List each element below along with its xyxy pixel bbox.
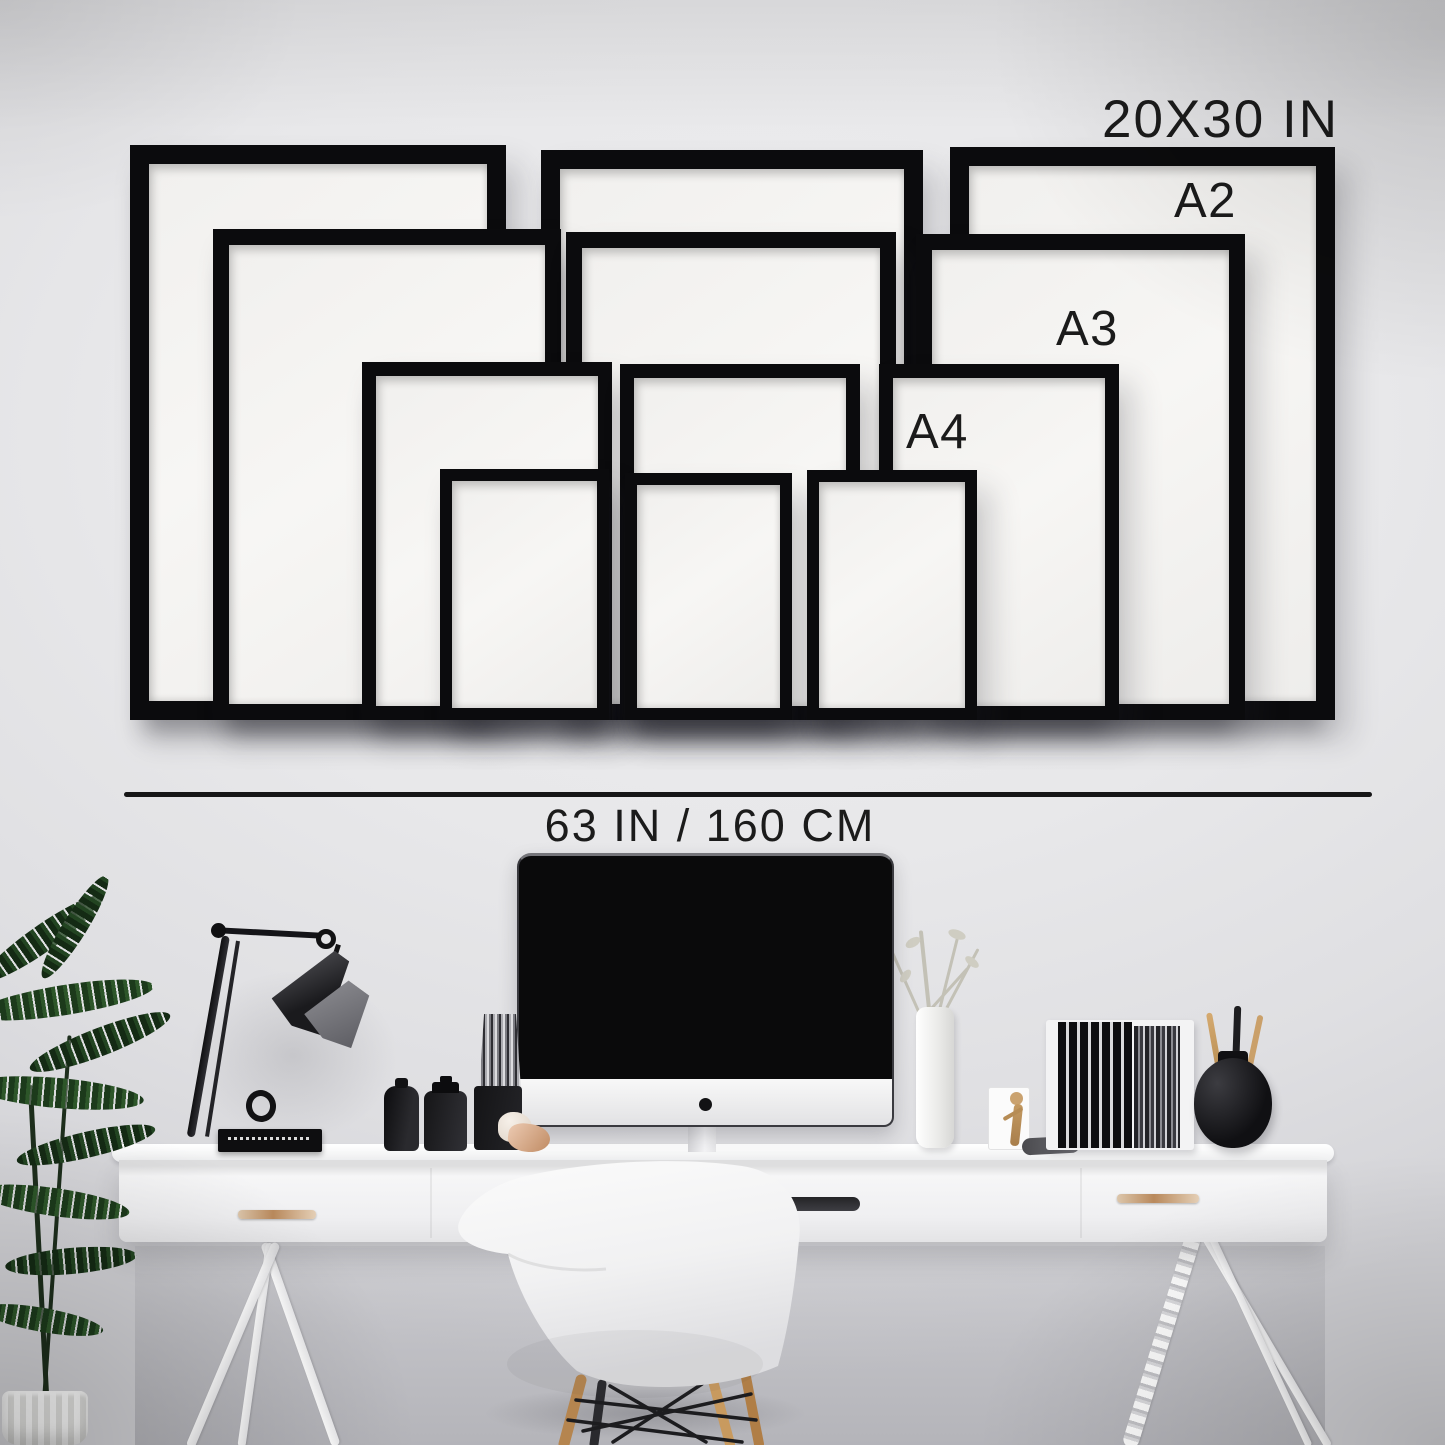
black-bottle	[384, 1086, 419, 1151]
size-label-a3: A3	[1056, 305, 1119, 354]
organizer-records	[1134, 1026, 1180, 1148]
measurement-line	[124, 792, 1372, 797]
lamp-hinge	[316, 929, 336, 949]
size-label-20x30: 20X30 IN	[1102, 93, 1339, 146]
jar-lid-handle	[440, 1076, 452, 1083]
desk-seam	[1080, 1168, 1082, 1238]
frame-a4-middle	[625, 473, 792, 720]
drawer-handle-left	[238, 1210, 316, 1219]
computer-monitor	[517, 853, 894, 1127]
glitter-ornament	[479, 1014, 521, 1090]
measurement-label: 63 IN / 160 CM	[450, 803, 970, 848]
desk-seam	[430, 1168, 432, 1238]
monitor-chin	[519, 1079, 892, 1125]
lamp-base-book	[218, 1129, 322, 1152]
frame-a4-right	[807, 470, 977, 720]
plant-pot	[2, 1391, 88, 1445]
lamp-joint	[211, 923, 226, 938]
jar-lid	[432, 1082, 459, 1093]
organizer-black-slats	[1058, 1022, 1132, 1148]
black-sphere-vase	[1194, 1058, 1272, 1148]
frame-a4-left	[440, 469, 609, 720]
white-vase	[916, 1007, 954, 1148]
plant-leaf	[4, 1242, 138, 1279]
monitor-stand	[688, 1124, 716, 1152]
plant-leaf	[0, 1071, 145, 1116]
black-jar	[424, 1091, 467, 1151]
plant-leaf	[0, 1178, 131, 1227]
desk-chair	[450, 1158, 805, 1445]
size-label-a4: A4	[906, 408, 969, 457]
mockup-scene: 20X30 IN A2 A3 A4 63 IN / 160 CM	[0, 0, 1445, 1445]
size-label-a2: A2	[1174, 177, 1237, 226]
dried-branch	[890, 950, 923, 1019]
drawer-handle-right	[1117, 1194, 1199, 1203]
monitor-logo-dot	[699, 1098, 712, 1111]
dried-sprig	[904, 935, 922, 951]
book-spine-text	[228, 1137, 310, 1140]
lamp-arm	[218, 927, 322, 938]
bottle-cap	[395, 1078, 408, 1088]
dried-branch	[919, 930, 932, 1018]
